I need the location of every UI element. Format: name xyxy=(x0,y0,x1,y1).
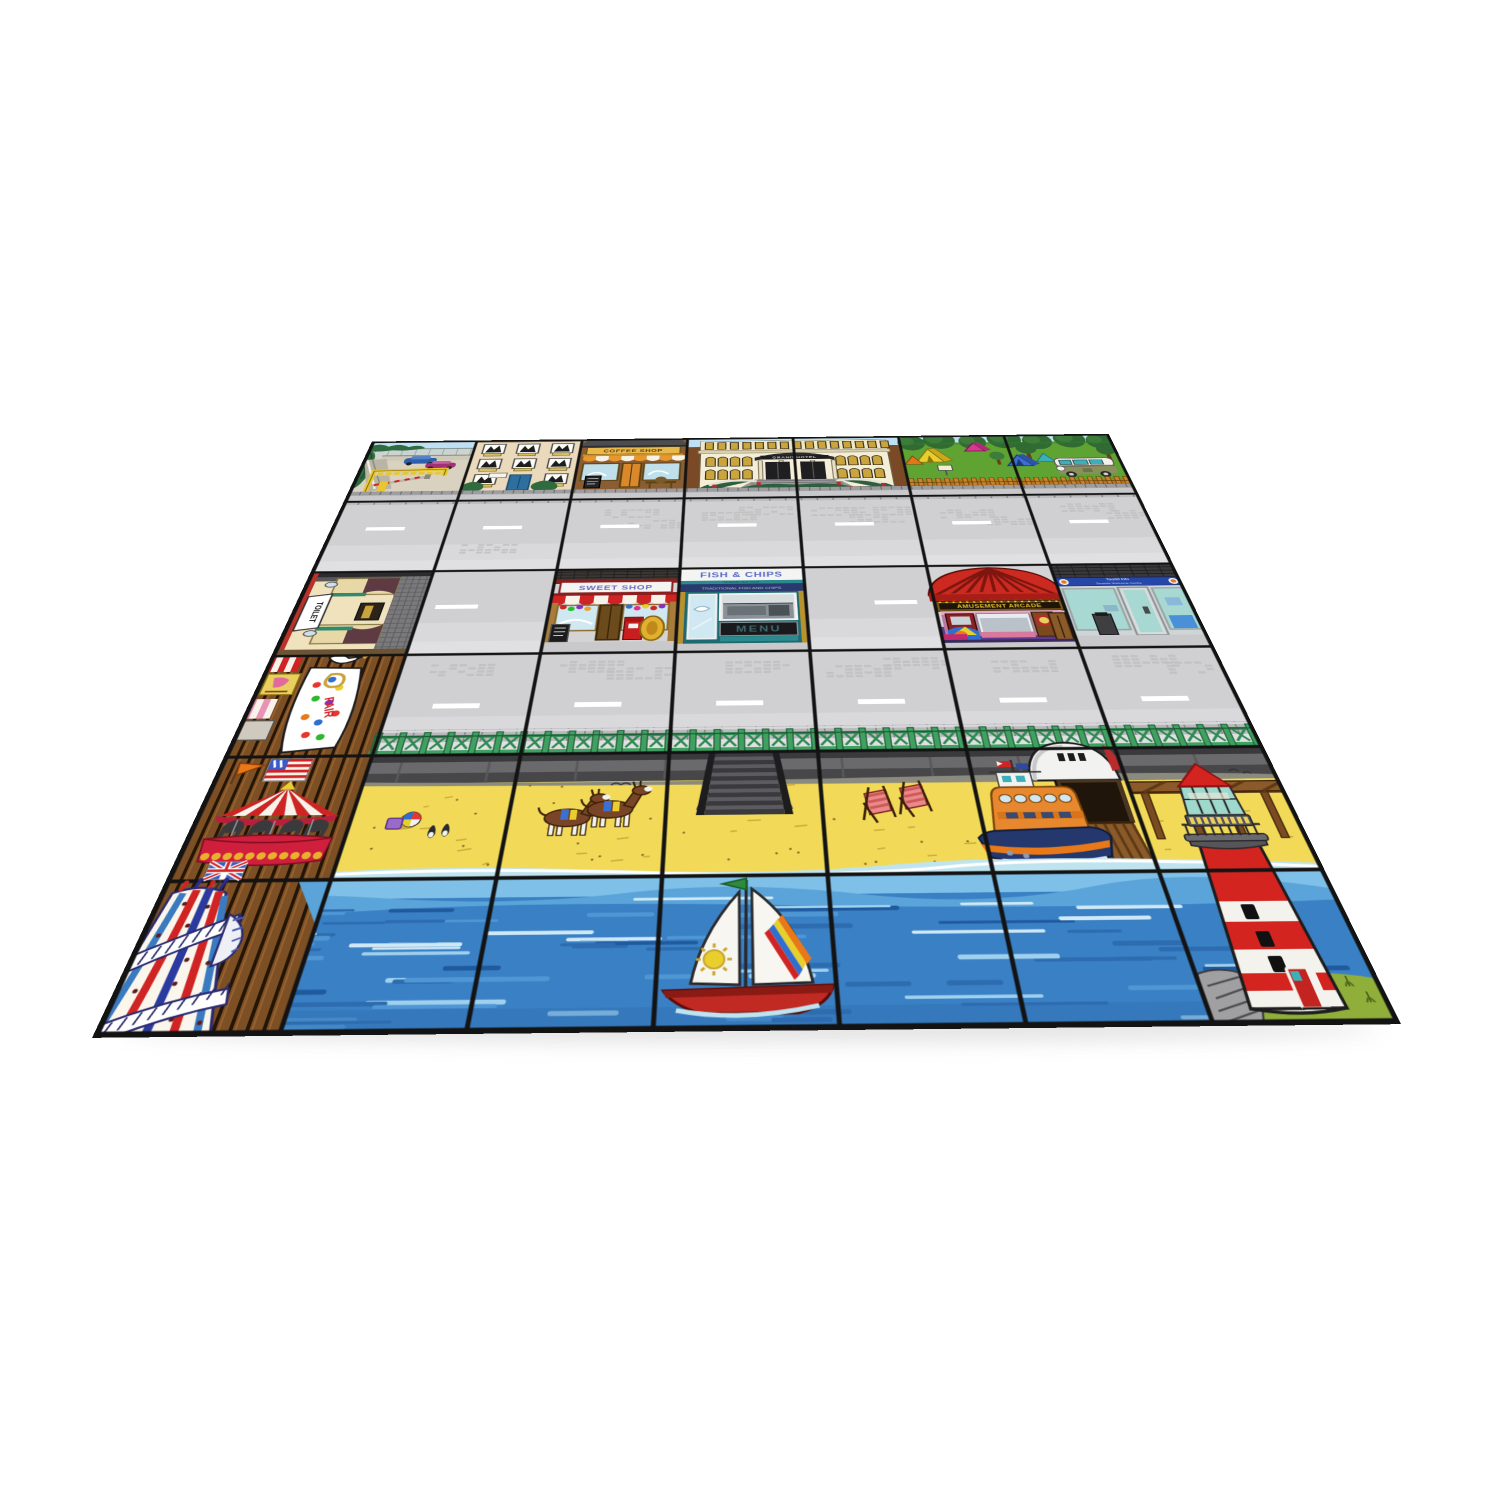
svg-text:Seaside Welcome Centre: Seaside Welcome Centre xyxy=(1096,582,1143,585)
svg-text:FAIR: FAIR xyxy=(321,696,336,719)
svg-text:FISH & CHIPS: FISH & CHIPS xyxy=(700,570,783,579)
svg-text:COFFEE SHOP: COFFEE SHOP xyxy=(603,449,663,454)
svg-text:MENU: MENU xyxy=(736,624,782,634)
svg-text:AMUSEMENT ARCADE: AMUSEMENT ARCADE xyxy=(956,603,1042,609)
svg-text:Tourist Info: Tourist Info xyxy=(1105,578,1129,581)
svg-text:SWEET SHOP: SWEET SHOP xyxy=(578,584,653,592)
